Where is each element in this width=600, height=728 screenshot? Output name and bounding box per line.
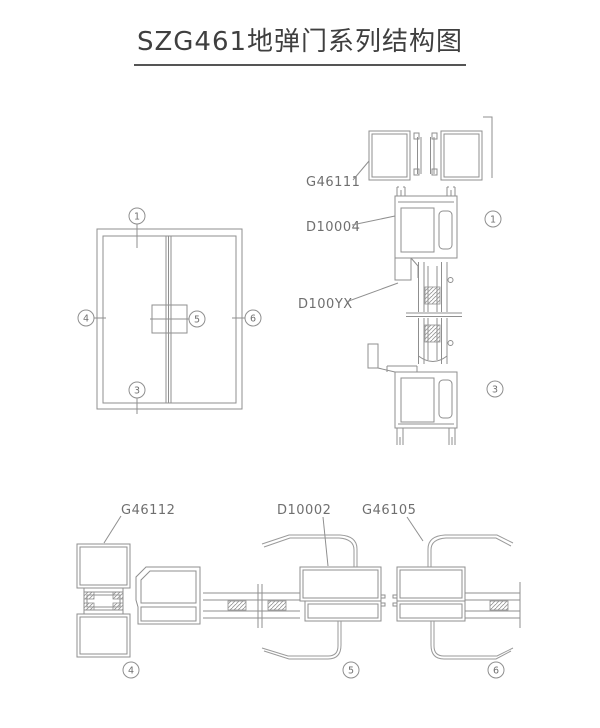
- interlock-teeth: [393, 595, 397, 606]
- door-rail-profile-top: [395, 196, 457, 258]
- balloon-hsection-4: 4: [123, 662, 139, 678]
- label-meeting-profile: G46105: [362, 503, 416, 518]
- balloon-elevation-5: 5: [189, 311, 205, 327]
- screw-symbol: [448, 278, 453, 283]
- setting-block: [228, 601, 246, 610]
- balloon-number: 1: [134, 212, 140, 223]
- leader-line: [353, 161, 369, 180]
- balloon-number: 4: [128, 666, 134, 677]
- glazing-bead-bottom: [368, 344, 447, 372]
- screw-symbol: [448, 341, 453, 346]
- glass-pane-right: [465, 582, 520, 628]
- break-line: [406, 313, 462, 317]
- connector-fork-left: [397, 187, 405, 196]
- balloon-vsection-1: 1: [485, 211, 501, 227]
- balloon-elevation-6: 6: [245, 310, 261, 326]
- wall-line: [483, 117, 492, 178]
- leader-line: [104, 516, 121, 543]
- door-rail-profile-bottom: [395, 372, 457, 445]
- interlock-teeth: [381, 595, 385, 606]
- frame-head-profile: [369, 131, 482, 180]
- weatherstrip-fin: [434, 621, 513, 656]
- weatherstrip-fin: [262, 621, 338, 656]
- balloon-number: 6: [493, 666, 499, 677]
- balloon-number: 6: [250, 314, 256, 325]
- structure-drawing: 1 4 5 6 3: [0, 0, 600, 728]
- balloon-vsection-3: 3: [487, 381, 503, 397]
- weatherstrip-fin: [264, 538, 354, 567]
- jamb-profile: [77, 544, 130, 657]
- setting-block: [268, 601, 286, 610]
- balloon-number: 5: [194, 315, 200, 326]
- balloon-hsection-5: 5: [343, 662, 359, 678]
- connector-fork-right: [447, 187, 455, 196]
- balloon-hsection-6: 6: [488, 662, 504, 678]
- label-jamb-profile: G46112: [121, 503, 175, 518]
- balloon-elevation-1: 1: [129, 208, 145, 224]
- balloon-elevation-4: 4: [78, 310, 94, 326]
- balloon-elevation-3: 3: [129, 382, 145, 398]
- label-rail-profile: D10004: [306, 220, 360, 235]
- weatherstrip-fin: [264, 621, 341, 659]
- leader-line: [323, 517, 328, 566]
- balloon-number: 5: [348, 666, 354, 677]
- leader-line: [346, 283, 398, 302]
- label-stile-profile: D10002: [277, 503, 331, 518]
- glazing-bead-top: [395, 258, 418, 280]
- setting-block: [490, 601, 508, 610]
- balloon-number: 4: [83, 314, 89, 325]
- horizontal-section-detail: G46112 D10002 G46105 4 5 6: [77, 503, 520, 678]
- door-elevation: 1 4 5 6 3: [78, 208, 261, 414]
- hinge-stile-profile: [136, 567, 200, 624]
- drawing-canvas: SZG461地弹门系列结构图 1: [0, 0, 600, 728]
- label-bead-profile: D100YX: [298, 297, 353, 312]
- meeting-stile-left: [262, 535, 385, 659]
- break-line: [258, 584, 262, 628]
- label-head-profile: G46111: [306, 175, 360, 190]
- glass-pane-left: [203, 584, 300, 628]
- vertical-section-detail: G46111 D10004 D100YX 1 3: [298, 117, 503, 445]
- leader-line: [407, 517, 423, 541]
- balloon-number: 1: [490, 215, 496, 226]
- weatherstrip-fin: [431, 538, 511, 567]
- meeting-stile-right: [393, 535, 513, 659]
- setting-block: [425, 287, 440, 304]
- weatherstrip-fin: [431, 621, 511, 659]
- balloon-number: 3: [134, 386, 140, 397]
- weatherstrip-fin: [262, 535, 357, 567]
- setting-block: [425, 325, 440, 342]
- balloon-number: 3: [492, 385, 498, 396]
